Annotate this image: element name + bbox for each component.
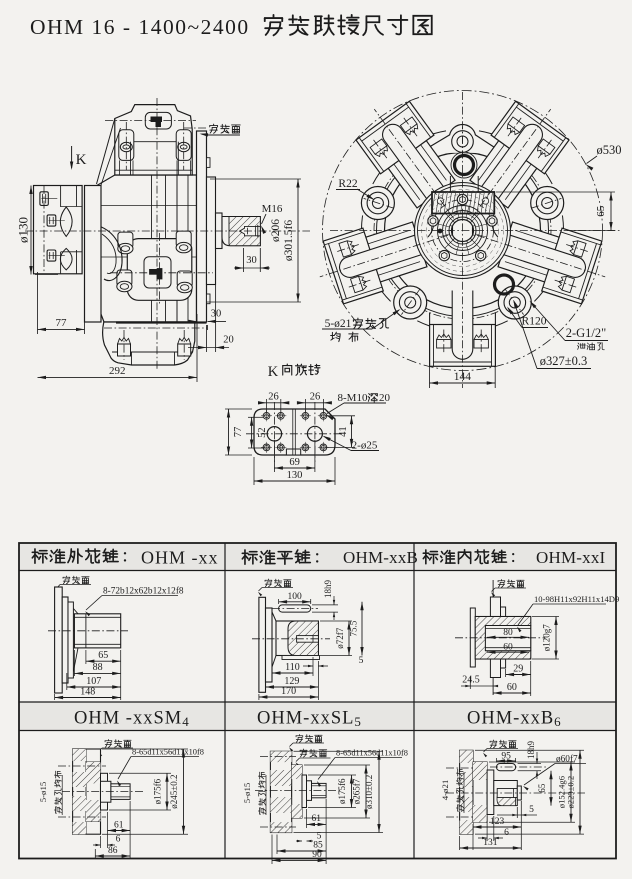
svg-text:ø175f6: ø175f6 bbox=[153, 778, 163, 804]
svg-text:65: 65 bbox=[595, 205, 607, 217]
svg-text:65: 65 bbox=[98, 650, 108, 661]
svg-text:30: 30 bbox=[246, 255, 257, 266]
svg-text:5: 5 bbox=[529, 805, 534, 815]
svg-text:ø530: ø530 bbox=[597, 143, 622, 157]
svg-text:5-ø21: 5-ø21 bbox=[325, 318, 352, 330]
svg-text:77: 77 bbox=[56, 317, 68, 329]
svg-text:88: 88 bbox=[93, 662, 103, 673]
svg-text:ø72f7: ø72f7 bbox=[335, 627, 345, 648]
svg-text:86: 86 bbox=[108, 846, 118, 856]
svg-text:80: 80 bbox=[503, 628, 513, 638]
svg-text:K: K bbox=[76, 152, 87, 168]
svg-text:ø120g7: ø120g7 bbox=[542, 624, 552, 652]
svg-text:ø301.5f6: ø301.5f6 bbox=[283, 220, 295, 261]
svg-text:6: 6 bbox=[116, 835, 121, 845]
svg-text:OHM-xxB6: OHM-xxB6 bbox=[467, 709, 562, 730]
svg-text:130: 130 bbox=[287, 470, 303, 481]
svg-text:ø130: ø130 bbox=[16, 217, 31, 243]
svg-text:ø229±0.2: ø229±0.2 bbox=[566, 776, 576, 809]
svg-text:29: 29 bbox=[513, 663, 523, 674]
svg-text:60: 60 bbox=[503, 643, 513, 653]
svg-text:8-M10: 8-M10 bbox=[338, 392, 368, 404]
svg-text:8-72b12x62b12x12f8: 8-72b12x62b12x12f8 bbox=[103, 586, 184, 597]
svg-text:41: 41 bbox=[338, 426, 349, 437]
svg-text:61: 61 bbox=[312, 814, 322, 824]
svg-text:18h9: 18h9 bbox=[323, 580, 333, 599]
svg-text:18h9: 18h9 bbox=[526, 741, 536, 760]
svg-text:OHM-xxI: OHM-xxI bbox=[536, 548, 606, 567]
svg-text:5: 5 bbox=[359, 656, 364, 666]
svg-text:ø327±0.3: ø327±0.3 bbox=[540, 354, 588, 368]
svg-text:61: 61 bbox=[114, 820, 124, 830]
svg-text:10-98H11x92H11x14D9: 10-98H11x92H11x14D9 bbox=[534, 594, 619, 604]
svg-text:292: 292 bbox=[109, 365, 126, 377]
svg-text:6: 6 bbox=[504, 828, 509, 838]
svg-text:90: 90 bbox=[312, 850, 322, 860]
svg-text:ø310±0.2: ø310±0.2 bbox=[364, 775, 374, 809]
svg-text:8-65d11x56d11x10f8: 8-65d11x56d11x10f8 bbox=[336, 749, 408, 758]
svg-text:OHM-xxSL5: OHM-xxSL5 bbox=[257, 709, 362, 730]
svg-text:2-G1/2": 2-G1/2" bbox=[566, 326, 607, 340]
svg-text:100: 100 bbox=[287, 592, 302, 602]
svg-text:144: 144 bbox=[454, 371, 472, 383]
svg-text:R120: R120 bbox=[522, 316, 547, 328]
svg-text:107: 107 bbox=[86, 676, 101, 687]
svg-text:60: 60 bbox=[507, 682, 517, 693]
svg-text:OHM -xx: OHM -xx bbox=[141, 548, 219, 568]
svg-text:M16: M16 bbox=[262, 203, 283, 215]
svg-text:52: 52 bbox=[257, 427, 268, 438]
svg-text:75.5: 75.5 bbox=[349, 620, 359, 636]
svg-text:69: 69 bbox=[289, 457, 300, 468]
svg-text:ø60f7: ø60f7 bbox=[556, 754, 578, 765]
svg-text:77: 77 bbox=[233, 427, 244, 438]
svg-text:OHM 16 - 1400~2400: OHM 16 - 1400~2400 bbox=[30, 15, 250, 39]
svg-text:170: 170 bbox=[281, 686, 296, 697]
svg-text:148: 148 bbox=[80, 686, 95, 697]
svg-text:123: 123 bbox=[490, 817, 505, 827]
svg-text:5-ø15: 5-ø15 bbox=[38, 781, 48, 802]
svg-text:ø265f7: ø265f7 bbox=[352, 778, 362, 804]
svg-text:ø245±0.2: ø245±0.2 bbox=[169, 774, 179, 808]
svg-text:24.5: 24.5 bbox=[462, 675, 480, 686]
svg-text:20: 20 bbox=[223, 335, 234, 346]
svg-text:20: 20 bbox=[379, 392, 391, 404]
svg-text:ø175f6: ø175f6 bbox=[337, 778, 347, 804]
svg-text:2-ø25: 2-ø25 bbox=[352, 440, 378, 452]
svg-text:131: 131 bbox=[483, 838, 498, 848]
svg-text:ø206: ø206 bbox=[270, 219, 282, 242]
svg-text:95: 95 bbox=[501, 752, 511, 762]
svg-text:26: 26 bbox=[310, 392, 321, 403]
svg-text:R22: R22 bbox=[338, 178, 357, 190]
svg-text:26: 26 bbox=[268, 392, 279, 403]
svg-text:OHM-xxB: OHM-xxB bbox=[343, 548, 418, 567]
svg-text:110: 110 bbox=[285, 662, 300, 673]
svg-text:OHM -xxSM4: OHM -xxSM4 bbox=[74, 709, 190, 730]
svg-text:65: 65 bbox=[537, 783, 547, 793]
svg-text:85: 85 bbox=[313, 841, 323, 851]
svg-text:4-ø21: 4-ø21 bbox=[440, 780, 450, 801]
svg-text:K: K bbox=[268, 364, 279, 380]
svg-text:5-ø15: 5-ø15 bbox=[242, 782, 252, 803]
